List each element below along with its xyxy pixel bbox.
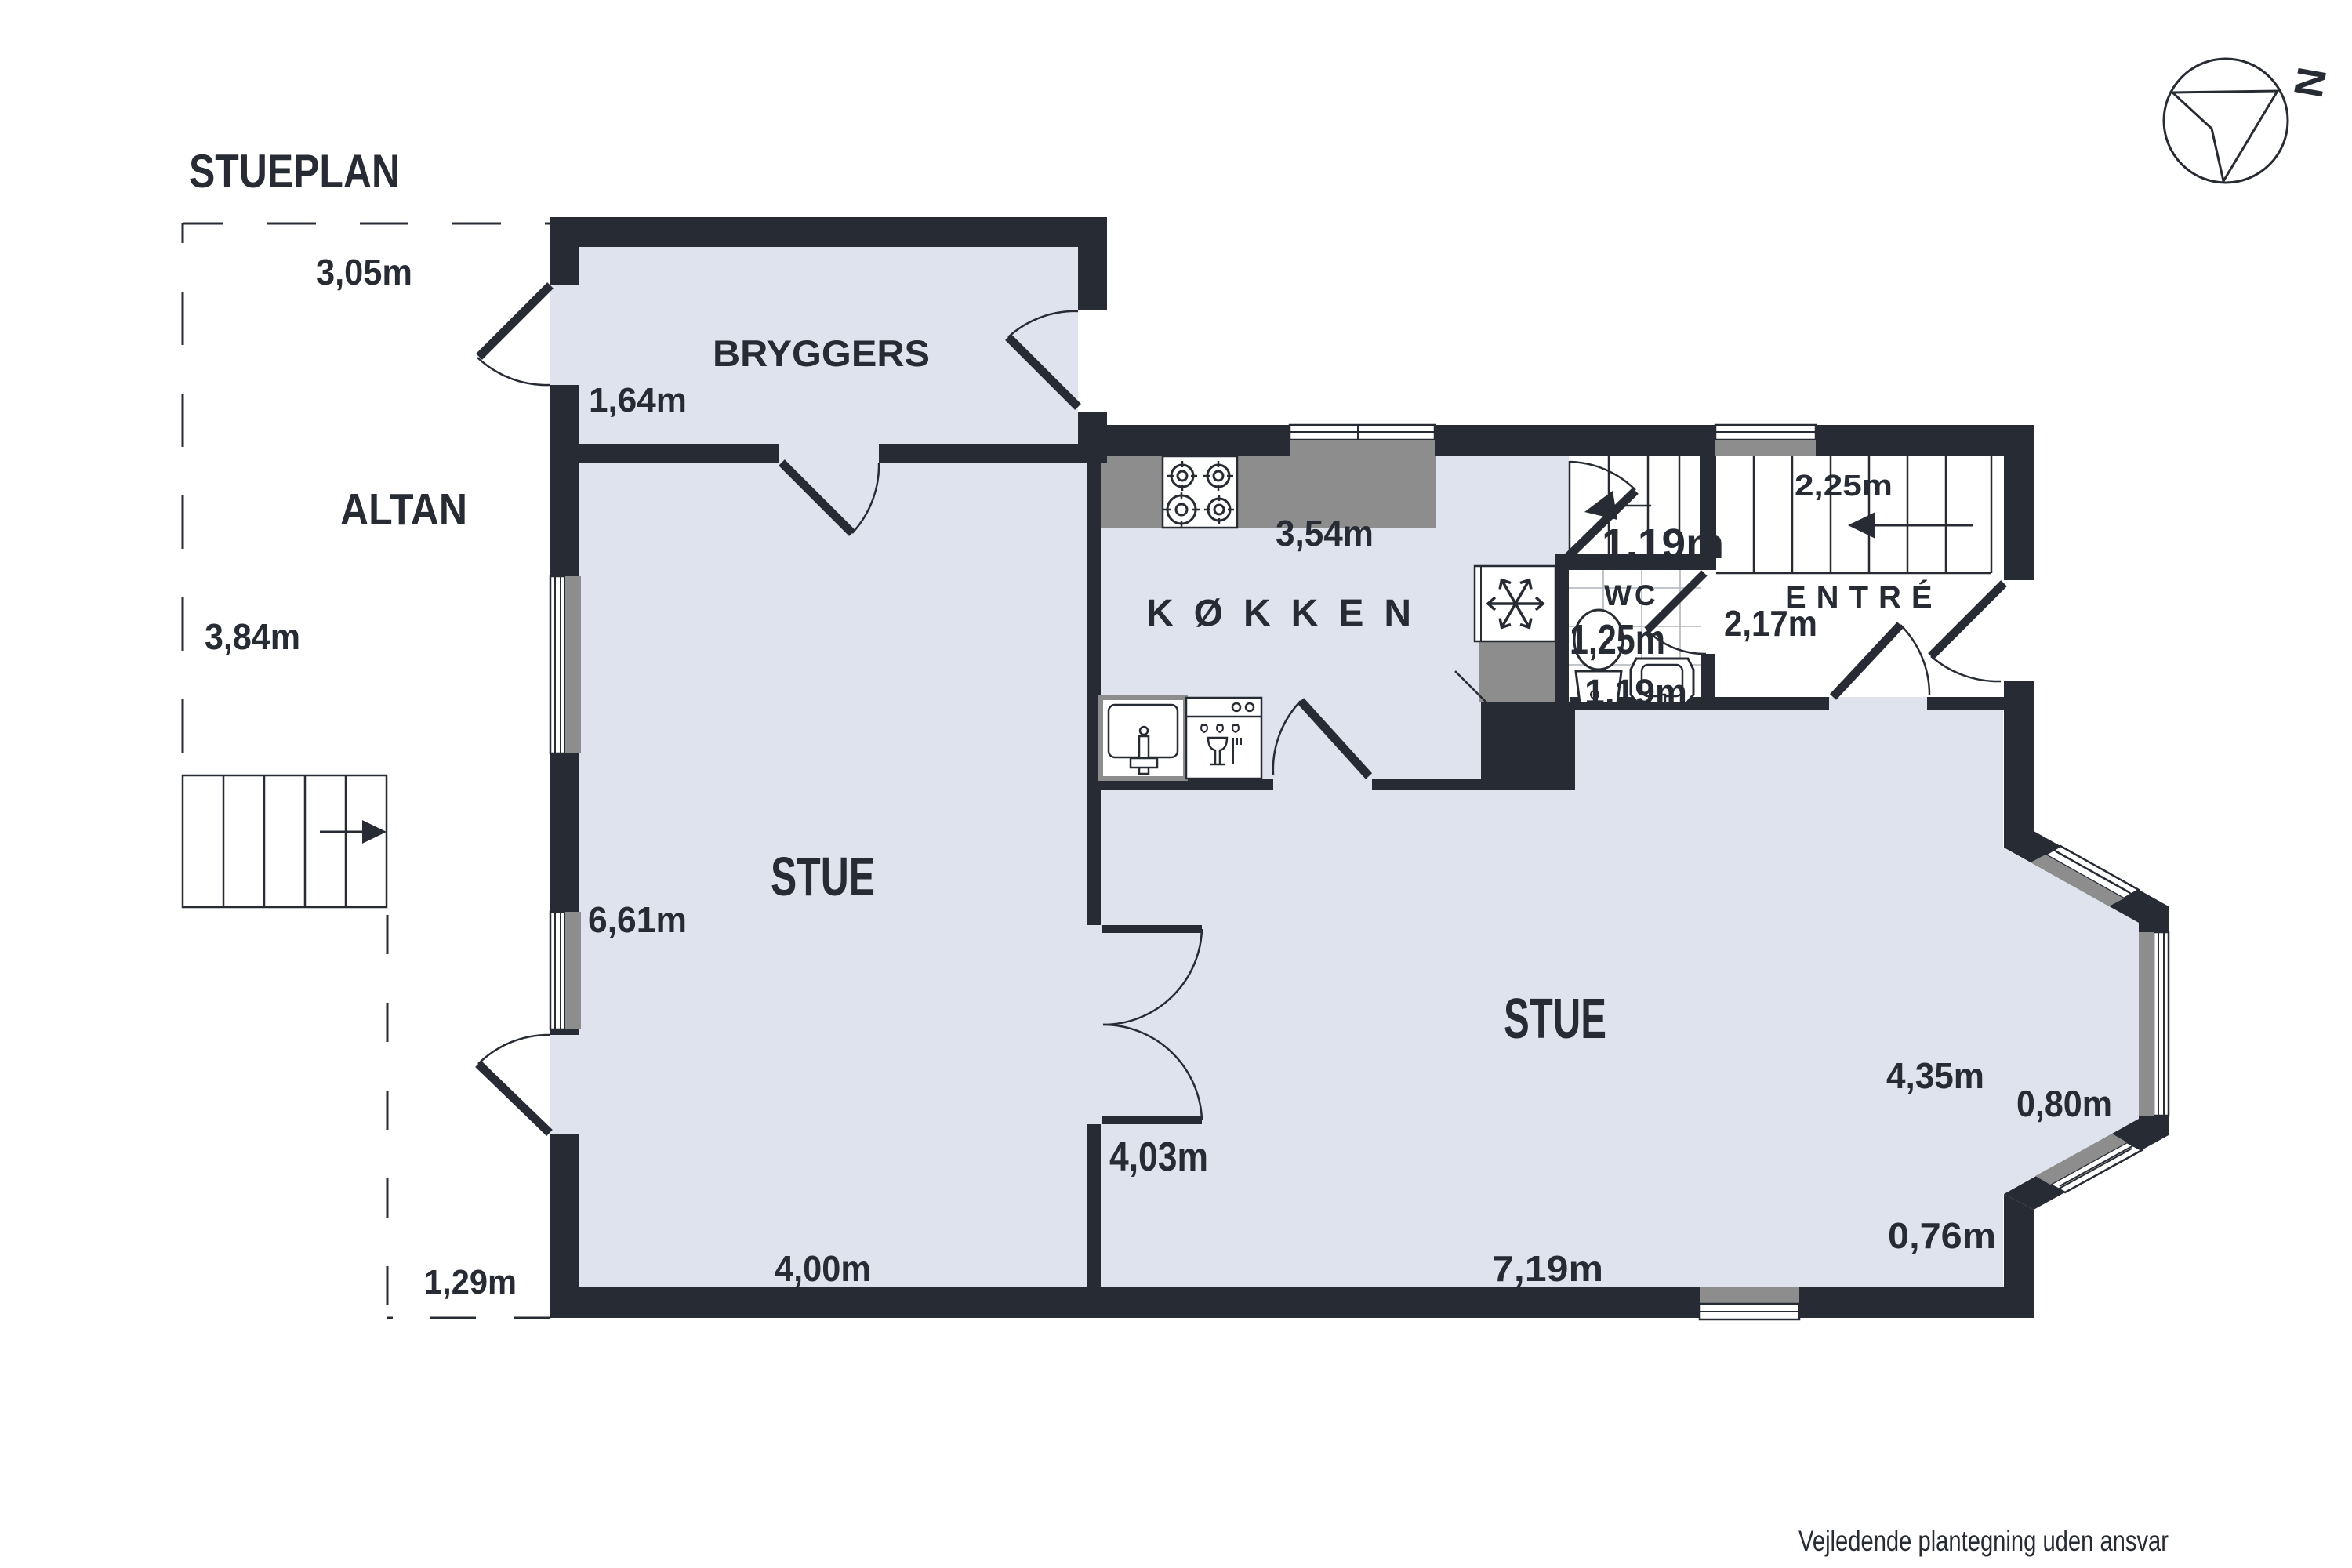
svg-text:ALTAN: ALTAN — [340, 485, 467, 535]
svg-text:2,25m: 2,25m — [1795, 470, 1893, 503]
svg-text:3,05m: 3,05m — [316, 252, 412, 292]
svg-text:6,61m: 6,61m — [588, 899, 687, 940]
svg-text:0,76m: 0,76m — [1888, 1215, 1996, 1256]
svg-text:STUE: STUE — [1504, 988, 1606, 1051]
svg-text:WC: WC — [1604, 579, 1659, 612]
svg-text:3,54m: 3,54m — [1276, 513, 1374, 554]
svg-text:3,84m: 3,84m — [205, 616, 300, 657]
svg-text:1,19m: 1,19m — [1602, 521, 1724, 568]
svg-text:KØKKEN: KØKKEN — [1146, 593, 1432, 634]
svg-text:STUEPLAN: STUEPLAN — [189, 145, 400, 198]
svg-text:BRYGGERS: BRYGGERS — [713, 332, 930, 374]
svg-text:1,19m: 1,19m — [1584, 672, 1687, 712]
svg-text:Vejledende plantegning uden an: Vejledende plantegning uden ansvar — [1798, 1525, 2169, 1557]
svg-text:STUE: STUE — [771, 846, 875, 907]
svg-text:0,80m: 0,80m — [2016, 1083, 2112, 1124]
svg-text:4,00m: 4,00m — [775, 1248, 871, 1289]
svg-text:4,03m: 4,03m — [1109, 1134, 1208, 1180]
svg-text:1,29m: 1,29m — [424, 1263, 517, 1301]
svg-text:1,25m: 1,25m — [1570, 616, 1665, 663]
svg-text:1,64m: 1,64m — [589, 381, 687, 419]
svg-text:4,35m: 4,35m — [1886, 1055, 1984, 1096]
svg-text:2,17m: 2,17m — [1724, 603, 1817, 644]
svg-text:7,19m: 7,19m — [1492, 1248, 1603, 1289]
